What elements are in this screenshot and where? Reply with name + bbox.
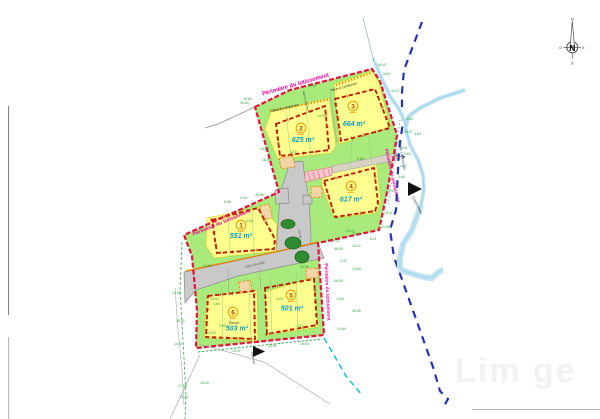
svg-text:617 m²: 617 m² — [340, 197, 363, 204]
svg-text:3.05: 3.05 — [219, 324, 226, 328]
svg-text:14.37: 14.37 — [232, 349, 241, 353]
svg-text:13.12: 13.12 — [352, 244, 361, 248]
svg-text:11.61: 11.61 — [180, 395, 189, 399]
svg-text:3.64: 3.64 — [414, 132, 421, 136]
svg-text:Lim ge: Lim ge — [455, 352, 577, 390]
svg-text:13.1: 13.1 — [297, 324, 304, 328]
svg-text:14.90: 14.90 — [172, 291, 181, 295]
svg-text:13.64: 13.64 — [352, 267, 361, 271]
svg-text:13.04: 13.04 — [268, 344, 277, 348]
svg-text:15.02: 15.02 — [176, 319, 185, 323]
svg-text:3: 3 — [351, 104, 355, 111]
svg-text:25.11: 25.11 — [331, 239, 340, 243]
svg-text:625 m²: 625 m² — [292, 137, 315, 144]
svg-text:46.65: 46.65 — [255, 193, 264, 197]
svg-text:4: 4 — [349, 184, 353, 191]
svg-text:1: 1 — [239, 223, 243, 230]
svg-text:4.47: 4.47 — [340, 259, 347, 263]
svg-text:19.64: 19.64 — [240, 101, 249, 105]
svg-text:N: N — [571, 18, 574, 22]
svg-text:16.05: 16.05 — [300, 265, 309, 269]
svg-text:44.47: 44.47 — [386, 189, 395, 193]
svg-text:4.04: 4.04 — [246, 219, 253, 223]
svg-text:14.64: 14.64 — [337, 327, 346, 331]
svg-text:551 m²: 551 m² — [230, 233, 253, 240]
svg-text:14.90: 14.90 — [203, 264, 212, 268]
svg-text:46.05: 46.05 — [334, 247, 343, 251]
svg-text:44.17: 44.17 — [391, 89, 400, 93]
svg-text:16.03: 16.03 — [262, 158, 271, 162]
svg-text:17.63: 17.63 — [178, 384, 187, 388]
svg-text:14.90: 14.90 — [207, 331, 216, 335]
svg-text:5: 5 — [289, 293, 293, 300]
svg-text:14.6: 14.6 — [317, 114, 324, 118]
svg-text:4.47: 4.47 — [400, 164, 407, 168]
svg-text:16.03: 16.03 — [260, 147, 269, 151]
svg-text:S: S — [571, 62, 574, 66]
svg-text:44.47: 44.47 — [404, 130, 413, 134]
svg-text:501 m²: 501 m² — [281, 306, 304, 313]
svg-text:503 m²: 503 m² — [226, 326, 249, 333]
svg-text:4.04: 4.04 — [276, 297, 283, 301]
svg-text:13.47: 13.47 — [384, 211, 393, 215]
svg-text:O: O — [559, 46, 562, 50]
svg-text:15.05: 15.05 — [300, 342, 309, 346]
svg-text:2: 2 — [299, 126, 303, 133]
svg-text:4.64: 4.64 — [337, 297, 344, 301]
svg-text:Périmètre du lotissement: Périmètre du lotissement — [323, 263, 332, 321]
svg-text:N: N — [569, 43, 575, 53]
svg-text:14.37: 14.37 — [174, 342, 183, 346]
svg-text:5.64: 5.64 — [357, 157, 364, 161]
svg-text:5.11: 5.11 — [370, 237, 377, 241]
svg-text:21.64: 21.64 — [381, 225, 390, 229]
svg-text:5.64: 5.64 — [406, 117, 413, 121]
svg-text:46.05: 46.05 — [352, 309, 361, 313]
svg-text:9.01: 9.01 — [395, 140, 402, 144]
svg-text:6.65: 6.65 — [224, 200, 231, 204]
svg-text:44.47: 44.47 — [378, 63, 387, 67]
svg-text:3.64: 3.64 — [404, 152, 411, 156]
svg-text:4.04: 4.04 — [240, 196, 247, 200]
svg-text:13.12: 13.12 — [352, 232, 361, 236]
svg-text:15.04: 15.04 — [200, 381, 209, 385]
svg-text:46.05: 46.05 — [334, 279, 343, 283]
svg-text:6: 6 — [231, 310, 235, 317]
svg-text:4.64: 4.64 — [213, 302, 220, 306]
svg-text:664 m²: 664 m² — [343, 121, 366, 128]
svg-text:13.01: 13.01 — [399, 146, 408, 150]
svg-text:4.64: 4.64 — [398, 175, 405, 179]
svg-text:12.0: 12.0 — [290, 150, 297, 154]
svg-text:15.02: 15.02 — [210, 297, 219, 301]
svg-text:Revoir: Revoir — [229, 321, 240, 325]
svg-text:12.47: 12.47 — [308, 84, 317, 88]
svg-text:E: E — [582, 46, 585, 50]
svg-text:3.64: 3.64 — [383, 72, 390, 76]
